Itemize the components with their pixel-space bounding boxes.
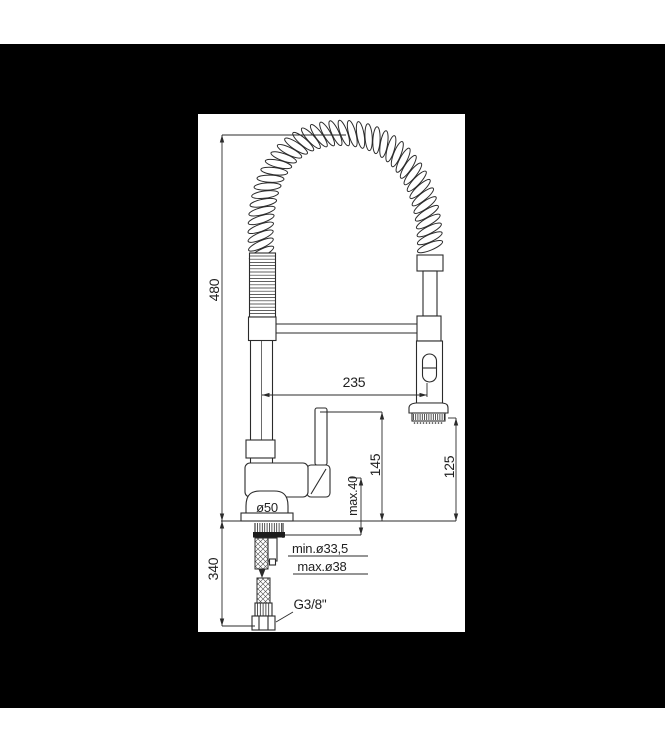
connection-text: G3/8" <box>293 597 326 612</box>
dim-145-label: 145 <box>367 453 383 476</box>
dim-340-label: 340 <box>205 557 221 580</box>
spray-flare <box>409 403 448 413</box>
hose-nut <box>252 616 275 630</box>
spray-head <box>409 255 448 424</box>
hose-break-arrow <box>259 569 266 578</box>
supply-hose-lower <box>257 578 270 603</box>
dim-125: 125 <box>441 418 458 521</box>
dim-max40-label: max.40 <box>346 476 360 516</box>
min-hole-text: min.ø33,5 <box>292 541 348 556</box>
faucet-technical-drawing: ø50 <box>198 114 465 632</box>
stud-foot <box>270 559 276 565</box>
under-deck-group <box>252 523 285 630</box>
threaded-shank <box>258 523 282 532</box>
dim-235: 235 <box>262 374 427 397</box>
spring-collar <box>417 255 443 271</box>
column-collar <box>246 440 275 458</box>
label-max-hole: max.ø38 <box>293 559 368 574</box>
page: ø50 <box>0 0 665 750</box>
label-connection: G3/8" <box>276 597 327 622</box>
drawing-panel: ø50 <box>198 114 465 632</box>
base-plate <box>241 513 293 521</box>
mounting-nut-band <box>253 532 285 538</box>
label-min-hole: min.ø33,5 <box>288 541 368 556</box>
max-hole-text: max.ø38 <box>297 559 346 574</box>
dim-480-label: 480 <box>206 278 222 301</box>
spray-hose-tube <box>423 271 437 316</box>
dim-340: 340 <box>205 521 255 626</box>
aerator-dots <box>414 422 443 424</box>
aerator-hatch <box>414 414 445 420</box>
lever-handle-bar <box>315 408 327 465</box>
mixer-body-group: ø50 <box>241 408 330 521</box>
spray-head-top <box>417 316 441 341</box>
mounting-stud <box>268 538 277 561</box>
supply-hose-upper <box>255 538 268 569</box>
spring-junction-block <box>249 317 277 341</box>
dim-235-label: 235 <box>343 374 366 390</box>
dim-125-label: 125 <box>441 455 457 478</box>
spout-assembly <box>246 317 417 463</box>
spring-coil <box>247 119 444 262</box>
spring-left-leg <box>250 253 276 317</box>
